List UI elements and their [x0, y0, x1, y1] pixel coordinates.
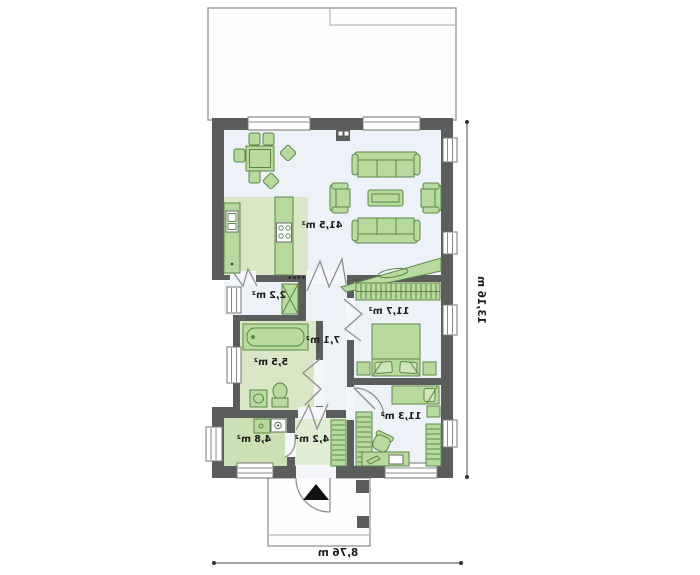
pantry-area-label: 2,2 m²: [252, 290, 286, 301]
hall-area-label: 7,1 m²: [306, 335, 340, 346]
washing-machine: [271, 419, 286, 432]
window: [206, 427, 222, 461]
chair: [234, 149, 245, 162]
window: [443, 232, 457, 254]
entry-area-label: 4,2 m²: [295, 434, 329, 445]
floor-plan-page: 41,5 m² 2,2 m² 5,5 m² 7,1 m² 11,7 m² 11,…: [0, 0, 700, 575]
sofa-armrest: [414, 220, 420, 241]
nightstand: [427, 406, 440, 417]
sofa: [352, 218, 420, 243]
armchair: [421, 183, 441, 213]
width-dimension-label: 8,76 m: [318, 547, 359, 559]
living-area-label: 41,5 m²: [302, 220, 343, 231]
bathroom-area-label: 5,5 m²: [254, 357, 288, 368]
entry-wardrobe: [331, 420, 346, 466]
double-bed: [372, 324, 420, 376]
window: [227, 287, 241, 313]
door-utility: [285, 433, 296, 457]
depth-dimension-label: 13,16 m: [475, 276, 487, 324]
single-bed: [392, 386, 439, 404]
wardrobe: [356, 283, 440, 300]
porch-post: [357, 516, 369, 528]
sofa: [352, 152, 420, 177]
nightstand: [357, 362, 370, 375]
armchair: [330, 183, 350, 213]
nightstand: [423, 362, 436, 375]
chair: [249, 171, 260, 183]
laptop: [389, 455, 403, 464]
toilet: [272, 383, 288, 407]
utility-sink: [254, 419, 270, 433]
bedroom-area-label: 11,7 m²: [369, 306, 410, 317]
chair: [249, 133, 260, 145]
window: [443, 305, 457, 335]
chimney-block: [336, 128, 350, 141]
chair: [263, 133, 274, 145]
porch-post: [356, 480, 369, 493]
stove: [277, 223, 292, 242]
bathtub: [243, 324, 308, 350]
washbasin: [250, 390, 267, 407]
floor-plan: 41,5 m² 2,2 m² 5,5 m² 7,1 m² 11,7 m² 11,…: [0, 0, 700, 575]
utility-fixtures: [254, 419, 286, 433]
bedroom2-area-label: 11,3 m²: [381, 411, 422, 422]
terrace: [208, 8, 456, 120]
window: [237, 463, 273, 478]
window: [443, 420, 457, 447]
sofa-armrest: [414, 154, 420, 175]
sofa-armrest: [352, 220, 358, 241]
window: [227, 347, 241, 383]
utility-area-label: 4,8 m²: [237, 434, 271, 445]
dimension-vertical: 13,16 m: [465, 120, 487, 479]
pillow: [375, 361, 393, 373]
bookshelf: [426, 424, 441, 466]
sofa-armrest: [352, 154, 358, 175]
desk: [362, 452, 409, 466]
dimension-horizontal: 8,76 m: [212, 547, 463, 565]
coffee-table: [368, 190, 403, 206]
pillow: [400, 361, 418, 373]
window: [443, 138, 457, 162]
